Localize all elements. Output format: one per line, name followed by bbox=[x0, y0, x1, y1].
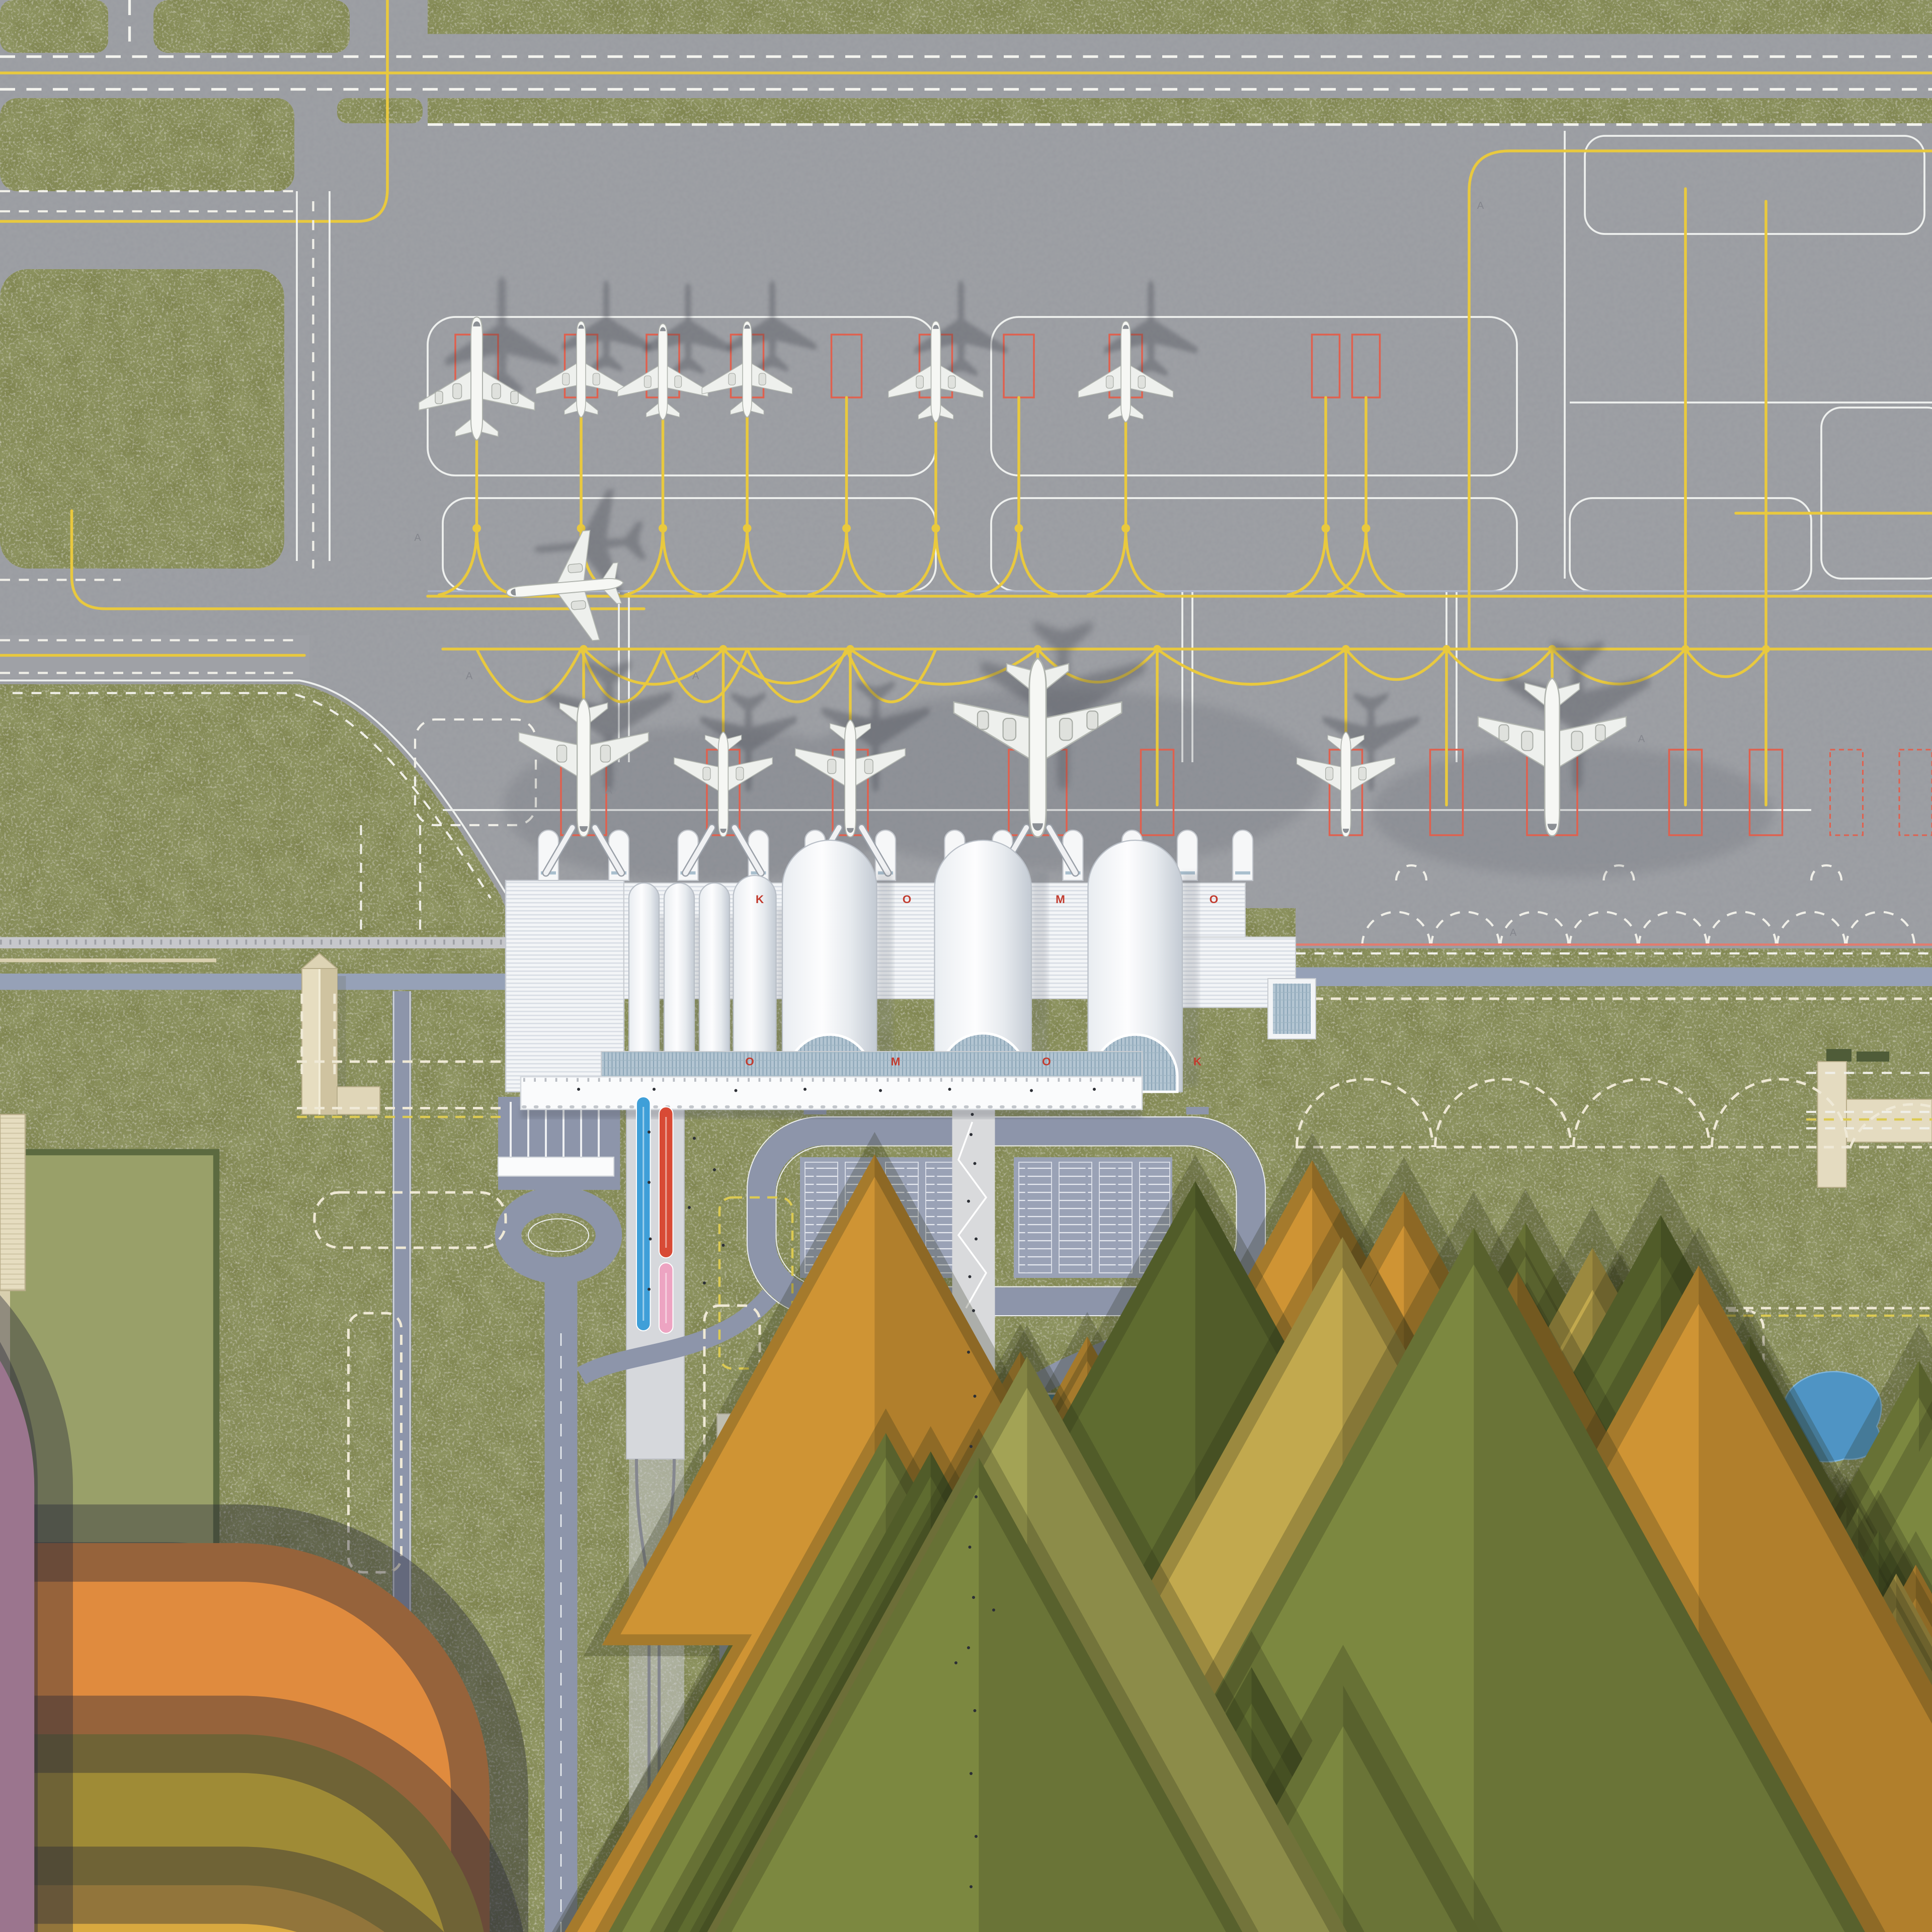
building-west-edge bbox=[0, 1114, 25, 1291]
taxi-junction-dot bbox=[659, 524, 667, 533]
gate-letter: O bbox=[903, 893, 912, 906]
pedestrian-dot bbox=[967, 1200, 970, 1203]
pedestrian-dot bbox=[970, 1445, 973, 1448]
gate-letter: O bbox=[1210, 893, 1219, 906]
pedestrian-dot bbox=[688, 1206, 691, 1209]
gate-letter: O bbox=[1042, 1056, 1051, 1068]
pedestrian-dot bbox=[722, 1244, 725, 1247]
taxi-junction-dot bbox=[1015, 524, 1023, 533]
pedestrian-dot bbox=[879, 1089, 882, 1092]
vault-roof bbox=[629, 883, 659, 1072]
pedestrian-dot bbox=[970, 1885, 973, 1888]
pedestrian-dot bbox=[974, 1395, 977, 1398]
pedestrian-dot bbox=[975, 1835, 978, 1838]
gate-letter: O bbox=[745, 1056, 754, 1068]
vault-roof bbox=[664, 883, 694, 1072]
pedestrian-dot bbox=[975, 1495, 978, 1498]
pedestrian-dot bbox=[974, 1162, 977, 1165]
pedestrian-dot bbox=[648, 1181, 651, 1184]
pedestrian-dot bbox=[972, 1309, 975, 1312]
vault-roof bbox=[734, 875, 776, 1077]
pedestrian-dot bbox=[1093, 1088, 1096, 1091]
pedestrian-dot bbox=[693, 1137, 696, 1140]
pedestrian-dot bbox=[992, 1608, 995, 1612]
pedestrian-dot bbox=[735, 1089, 738, 1092]
pedestrian-dot bbox=[971, 1113, 974, 1116]
gate-letter: K bbox=[1193, 1056, 1202, 1068]
taxiway-label: A bbox=[414, 532, 421, 543]
taxiway-label: A bbox=[692, 671, 699, 682]
taxiway-label: A bbox=[1477, 200, 1484, 211]
taxi-junction-dot bbox=[1362, 524, 1371, 533]
pedestrian-dot bbox=[1030, 1089, 1033, 1092]
pedestrian-dot bbox=[969, 1546, 972, 1549]
gate-letter: K bbox=[756, 893, 764, 906]
pedestrian-dot bbox=[974, 1709, 977, 1712]
pedestrian-dot bbox=[703, 1281, 706, 1284]
pedestrian-dot bbox=[972, 1596, 975, 1599]
pedestrian-dot bbox=[948, 1088, 951, 1091]
taxiway-label: A bbox=[1638, 734, 1645, 745]
vault-roof bbox=[699, 883, 730, 1072]
pedestrian-dot bbox=[648, 1131, 651, 1134]
pedestrian-dot bbox=[649, 1238, 652, 1241]
taxi-junction-dot bbox=[932, 524, 940, 533]
taxiway-label: A bbox=[1510, 927, 1517, 938]
taxi-junction-dot bbox=[842, 524, 851, 533]
gate-letter: M bbox=[1056, 893, 1065, 906]
pedestrian-dot bbox=[967, 1646, 970, 1649]
taxi-junction-dot bbox=[1322, 524, 1330, 533]
airport-site-plan: KOMOOMOK AAAAAAA bbox=[0, 0, 1932, 1932]
car bbox=[0, 1236, 34, 1932]
pedestrian-dot bbox=[577, 1088, 580, 1091]
east-pier bbox=[1268, 979, 1316, 1039]
south-facade bbox=[601, 1052, 1142, 1077]
pedestrian-dot bbox=[970, 1772, 973, 1775]
pedestrian-dot bbox=[713, 1168, 716, 1171]
pedestrian-dot bbox=[975, 1238, 978, 1241]
taxi-junction-dot bbox=[472, 524, 481, 533]
pedestrian-dot bbox=[967, 1351, 970, 1354]
pedestrian-dot bbox=[969, 1275, 972, 1278]
pedestrian-dot bbox=[803, 1088, 807, 1091]
taxi-junction-dot bbox=[743, 524, 752, 533]
pedestrian-dot bbox=[970, 1133, 973, 1136]
pedestrian-dot bbox=[653, 1088, 656, 1091]
pedestrian-dot bbox=[954, 1661, 957, 1664]
gate-letter: M bbox=[891, 1056, 901, 1068]
pedestrian-dot bbox=[648, 1288, 651, 1291]
taxi-junction-dot bbox=[1121, 524, 1130, 533]
taxiway-label: A bbox=[605, 785, 612, 796]
taxiway-label: A bbox=[466, 671, 473, 682]
